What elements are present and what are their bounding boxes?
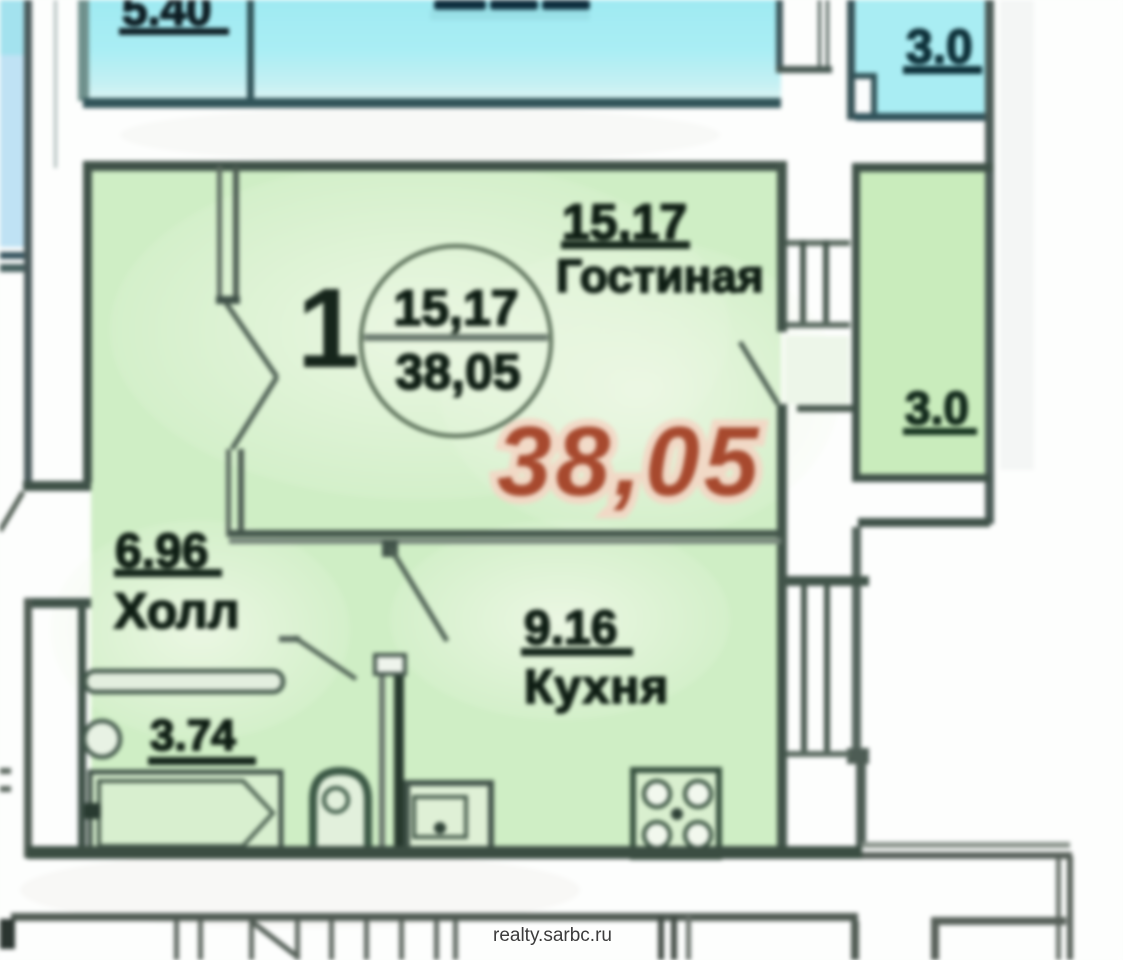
svg-text:Гостиная: Гостиная (556, 250, 764, 302)
svg-text:38,05: 38,05 (395, 344, 520, 400)
svg-text:3.74: 3.74 (150, 711, 236, 760)
svg-text:9.16: 9.16 (524, 602, 617, 655)
svg-text:38,05: 38,05 (497, 406, 762, 516)
svg-text:Холл: Холл (114, 583, 240, 639)
svg-text:3.0: 3.0 (905, 382, 969, 434)
svg-text:1: 1 (297, 265, 360, 391)
svg-text:Кухня: Кухня (524, 661, 669, 714)
svg-text:15,17: 15,17 (393, 280, 518, 336)
